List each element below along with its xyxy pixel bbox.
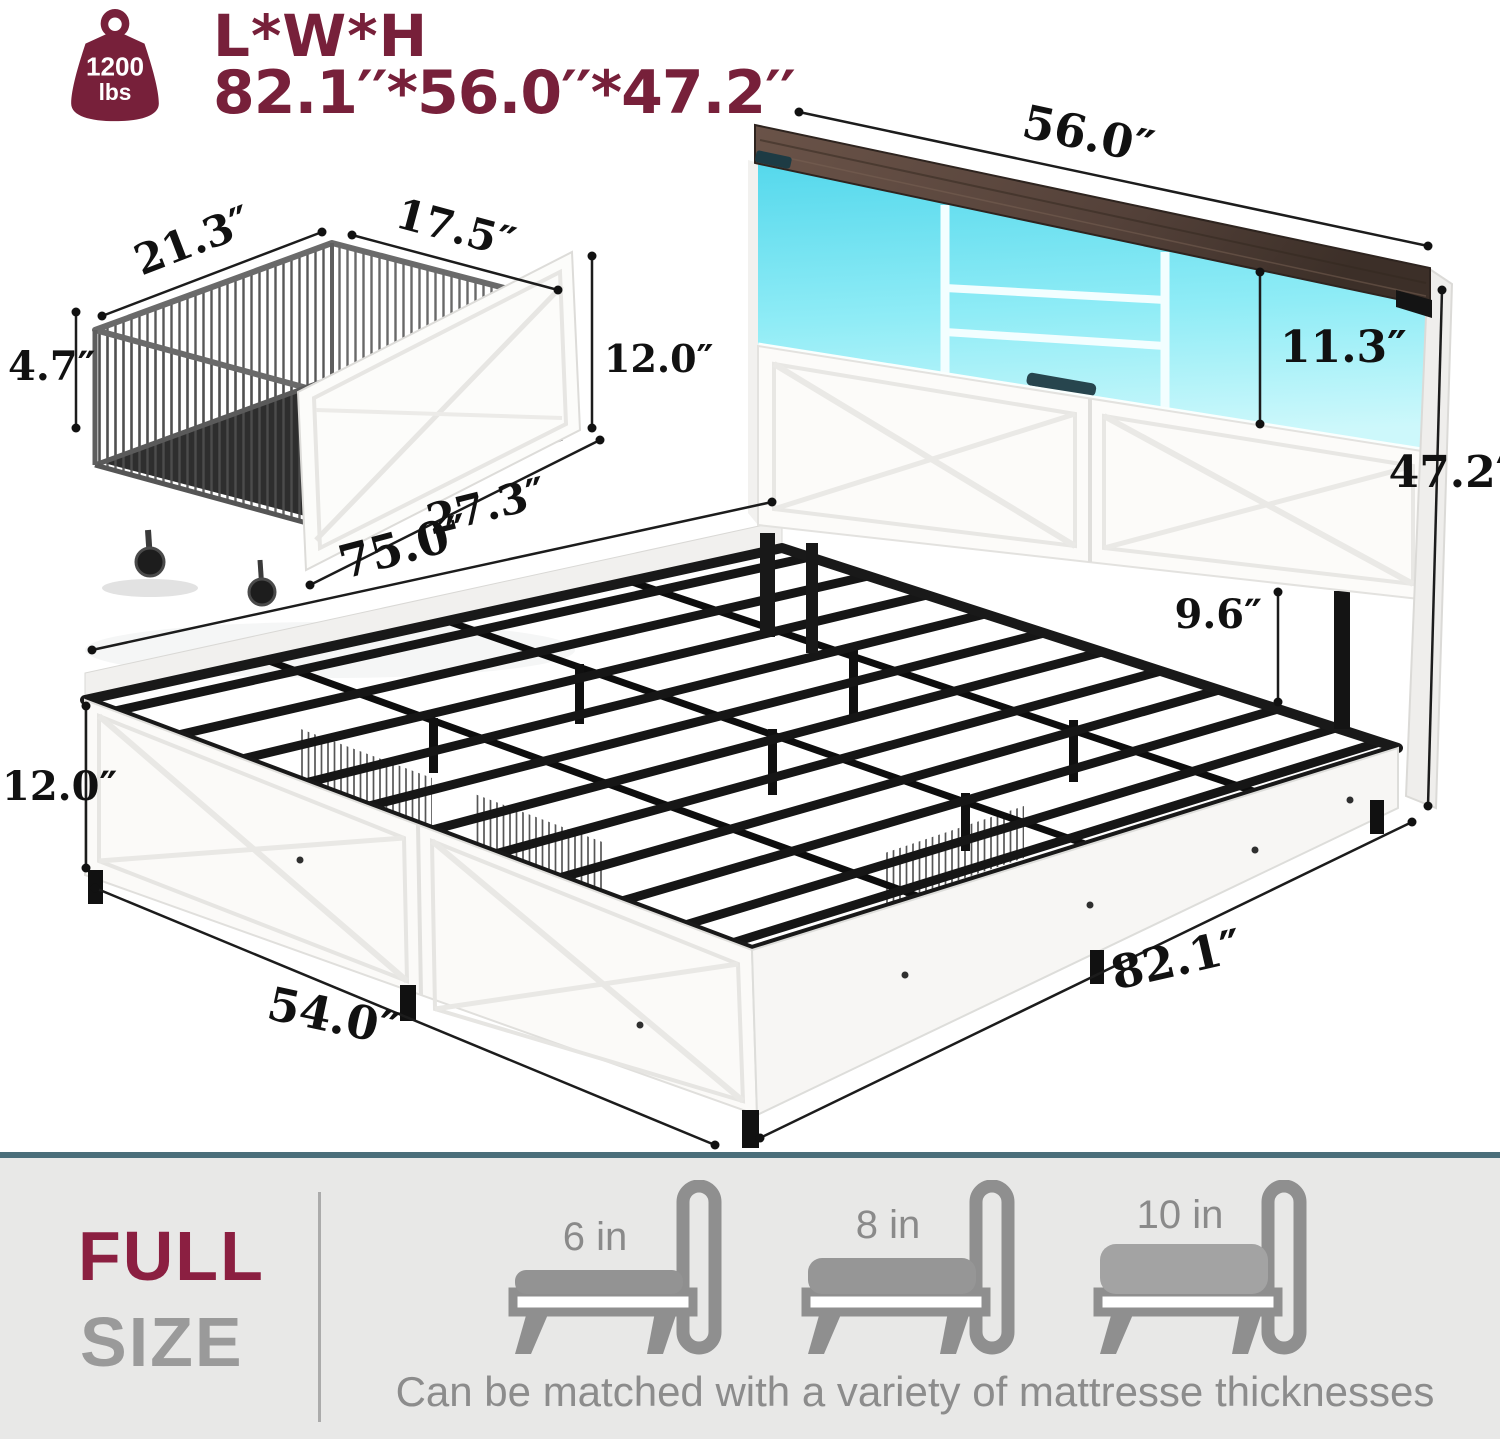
mattress-option-label: 8 in bbox=[856, 1203, 921, 1247]
dim-total-height: 47.2″ bbox=[1389, 447, 1500, 498]
dim-drawer-top-depth: 17.5″ bbox=[391, 189, 521, 268]
dim-drawer-front-height: 12.0″ bbox=[604, 336, 714, 381]
dim-drawer-basket-height: 4.7″ bbox=[8, 343, 95, 390]
mattress-note: Can be matched with a variety of mattres… bbox=[330, 1368, 1500, 1416]
dim-cubby-height: 11.3″ bbox=[1280, 322, 1407, 373]
product-dimension-diagram: 1200 lbs L*W*H 82.1′′*56.0′′*47.2′′ bbox=[0, 0, 1500, 1439]
dim-drawer-top-width: 21.3″ bbox=[128, 196, 259, 285]
mattress-option-label: 10 in bbox=[1137, 1193, 1224, 1237]
diagram-canvas: 21.3″ 17.5″ 4.7″ 12.0″ 27.3″ bbox=[0, 0, 1500, 1155]
mattress-option-8in-icon: 8 in bbox=[798, 1180, 1033, 1360]
mattress-option-label: 6 in bbox=[563, 1215, 628, 1259]
footer-divider bbox=[318, 1192, 321, 1422]
mattress-option-10in-icon: 10 in bbox=[1090, 1180, 1325, 1360]
mattress-option-6in-icon: 6 in bbox=[505, 1180, 740, 1360]
size-word-secondary: SIZE bbox=[80, 1302, 244, 1382]
dim-foot-width: 54.0″ bbox=[263, 976, 404, 1056]
dim-under-bed-clearance: 9.6″ bbox=[1175, 591, 1262, 638]
size-word-primary: FULL bbox=[78, 1216, 265, 1296]
dim-side-height: 12.0″ bbox=[2, 763, 117, 810]
bed-side-panel bbox=[85, 700, 757, 1115]
